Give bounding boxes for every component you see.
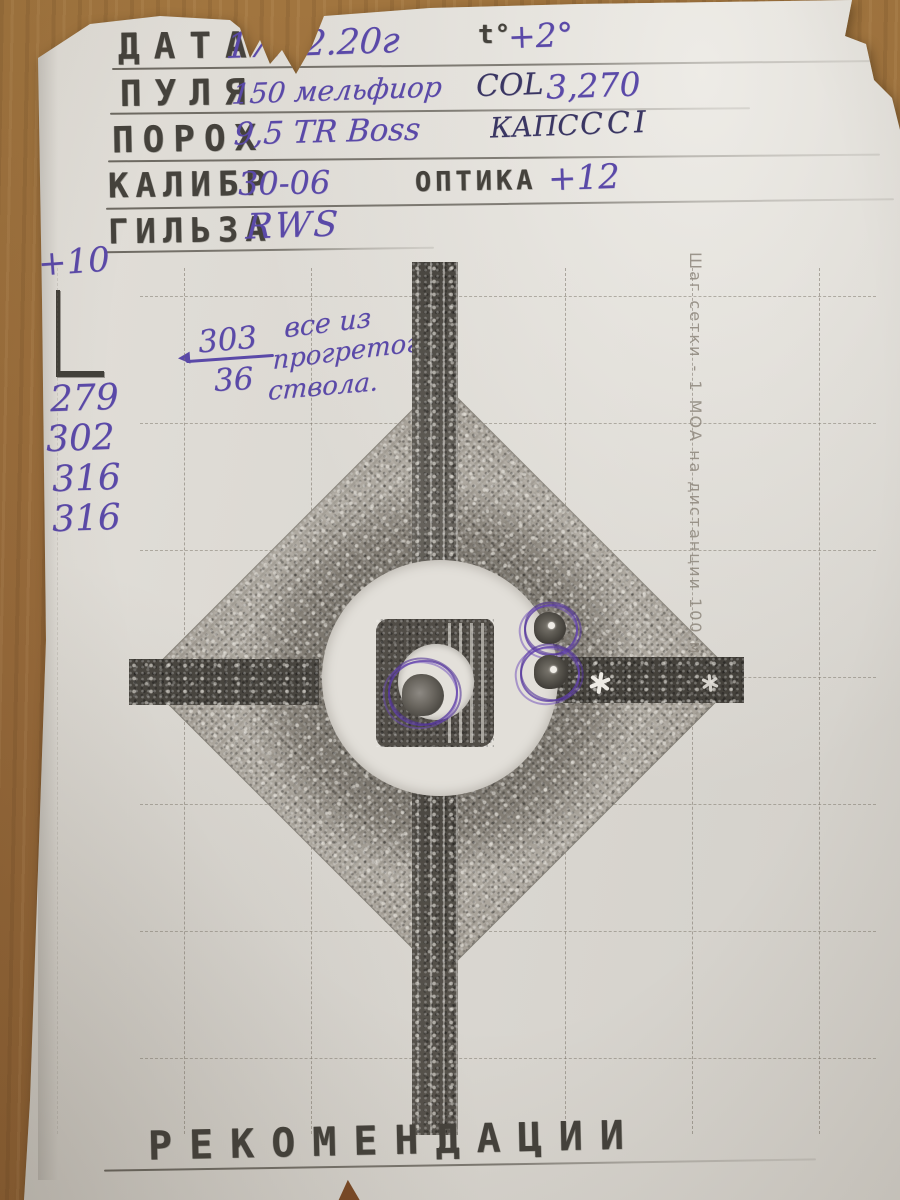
grid-line-vertical xyxy=(819,268,820,1134)
field-value-caliber: 30-06 xyxy=(238,163,331,203)
recommendations-label: РЕКОМЕНДАЦИИ xyxy=(148,1112,642,1169)
fraction-denominator: 36 xyxy=(213,361,254,399)
field-value-date: 17.02.20г xyxy=(225,21,401,67)
field-value-temperature: +2° xyxy=(507,15,573,56)
field-value-bullet: 150 мельфиор xyxy=(230,70,443,110)
pen-tip xyxy=(335,1179,360,1200)
field-value-powder: 9,5 TR Boss xyxy=(233,112,422,153)
field-label-col: COL xyxy=(475,67,544,104)
pen-circle-center xyxy=(388,660,458,726)
field-value-case: RWS xyxy=(245,204,342,247)
shot-velocity-2: 302 xyxy=(45,417,115,460)
field-label-optic: ОПТИКА xyxy=(415,165,537,198)
grid-line-horizontal xyxy=(140,423,876,424)
photo-scene: ДАТА 17.02.20г t° +2° ПУЛЯ 150 мельфиор … xyxy=(0,0,900,1200)
grid-line-vertical xyxy=(57,268,58,1134)
shot-velocity-4: 316 xyxy=(51,497,121,540)
field-value-col: 3,270 xyxy=(545,64,641,106)
shot-velocity-1: 279 xyxy=(49,377,119,420)
paper-shadow: ДАТА 17.02.20г t° +2° ПУЛЯ 150 мельфиор … xyxy=(0,0,900,1200)
field-value-optic: +12 xyxy=(547,157,620,199)
pen-circle-right xyxy=(520,646,580,702)
grid-line-horizontal xyxy=(140,296,876,297)
shot-velocity-3: 316 xyxy=(51,457,121,500)
grid-line-horizontal xyxy=(140,1058,876,1059)
target-sheet: ДАТА 17.02.20г t° +2° ПУЛЯ 150 мельфиор … xyxy=(0,0,900,1200)
paper-edge-shading xyxy=(38,40,58,1180)
field-label-primer: КАПС xyxy=(489,108,579,144)
fraction-numerator: 303 xyxy=(197,319,259,360)
elevation-note: +10 xyxy=(37,240,111,285)
corner-mark-horizontal xyxy=(56,371,104,377)
field-label-temperature: t° xyxy=(478,20,511,50)
field-value-primer: CCI xyxy=(579,105,650,142)
grid-line-horizontal xyxy=(140,931,876,932)
target-bar-left xyxy=(129,659,319,705)
grid-step-caption: Шаг сетки - 1 МОА на дистанции 100 м xyxy=(686,252,705,662)
